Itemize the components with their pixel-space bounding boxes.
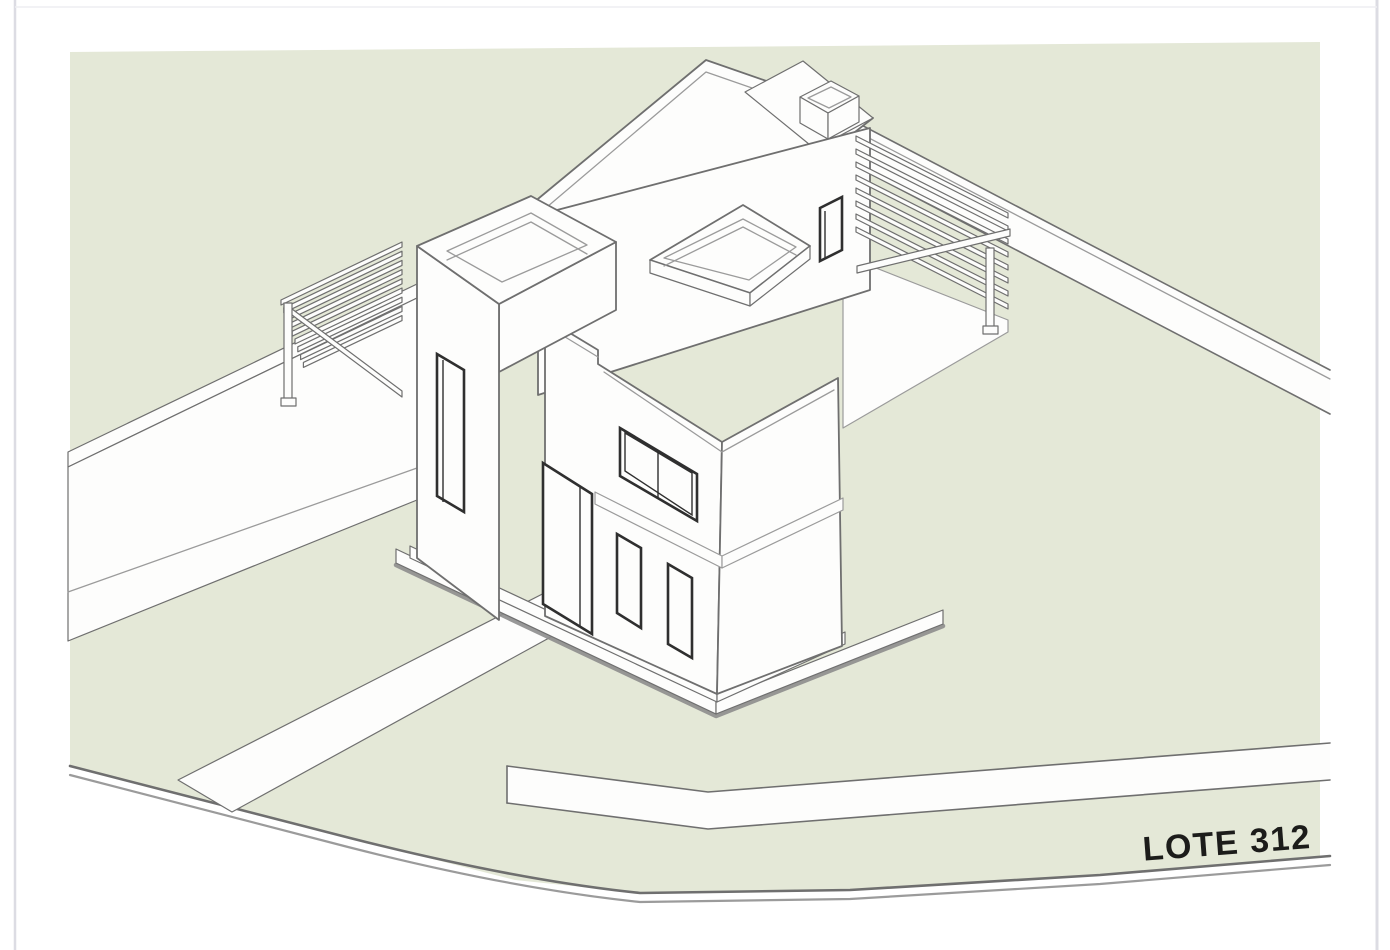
pergola-post-base: [281, 398, 296, 406]
pergola-post-base: [983, 326, 998, 334]
ground-window-1: [617, 534, 641, 628]
tower-window: [437, 354, 464, 512]
entry-door-frame: [543, 463, 592, 634]
upper-wall-window: [820, 197, 842, 261]
site-plan-canvas: LOTE 312: [0, 0, 1390, 950]
pergola-post-shaft: [284, 303, 292, 400]
pergola-post-shaft: [986, 248, 994, 328]
entry-door: [543, 463, 592, 634]
ground-window-2: [668, 564, 692, 658]
site-plan-image: LOTE 312: [0, 0, 1390, 950]
